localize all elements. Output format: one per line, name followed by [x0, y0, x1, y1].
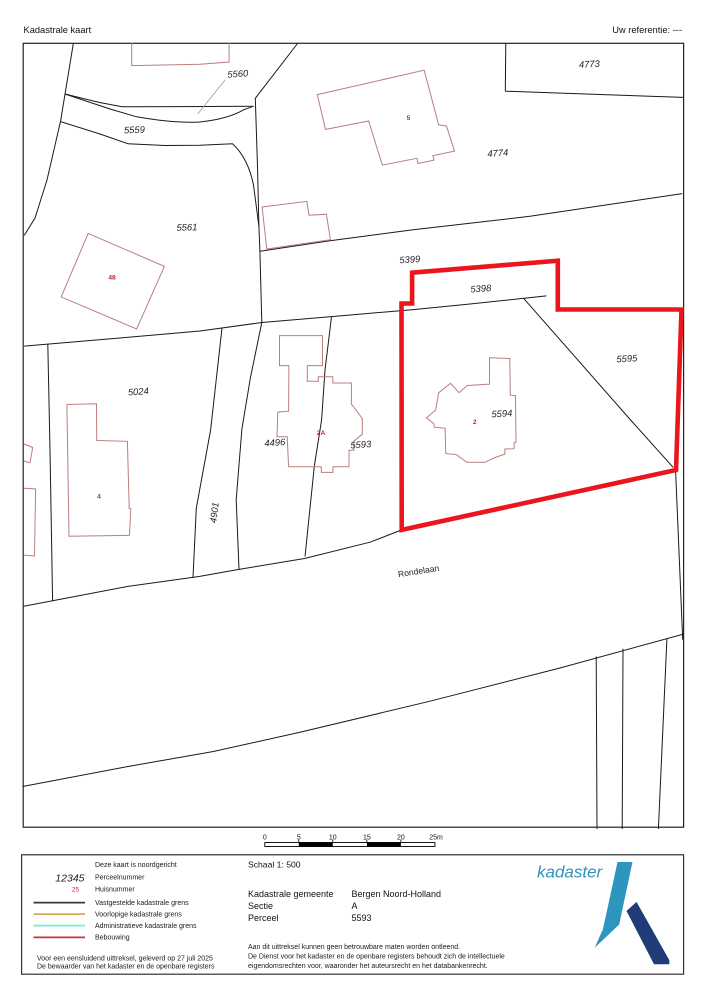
svg-text:Huisnummer: Huisnummer	[95, 886, 135, 893]
svg-text:25m: 25m	[429, 834, 443, 841]
svg-text:De bewaarder van het kadaster: De bewaarder van het kadaster en de open…	[37, 964, 215, 971]
svg-text:Vastgestelde kadastrale grens: Vastgestelde kadastrale grens	[95, 900, 189, 907]
svg-text:Uw referentie: ---: Uw referentie: ---	[612, 25, 682, 35]
svg-text:5593: 5593	[350, 438, 372, 450]
svg-text:Voorlopige kadastrale grens: Voorlopige kadastrale grens	[95, 911, 182, 918]
svg-text:Bergen Noord-Holland: Bergen Noord-Holland	[352, 889, 442, 899]
svg-text:5593: 5593	[352, 913, 372, 923]
svg-text:Deze kaart is noordgericht: Deze kaart is noordgericht	[95, 862, 177, 869]
svg-text:Kadastrale kaart: Kadastrale kaart	[24, 25, 92, 35]
svg-text:4: 4	[97, 494, 101, 501]
svg-text:Perceelnummer: Perceelnummer	[95, 874, 145, 881]
svg-text:De Dienst voor het kadaster en: De Dienst voor het kadaster en de openba…	[248, 954, 505, 961]
svg-text:Bebouwing: Bebouwing	[95, 935, 130, 942]
svg-text:5559: 5559	[124, 124, 146, 136]
svg-text:Schaal 1: 500: Schaal 1: 500	[248, 859, 301, 869]
svg-text:5398: 5398	[470, 282, 492, 294]
svg-text:Voor een eensluidend uittrekse: Voor een eensluidend uittreksel, gelever…	[37, 955, 213, 962]
svg-text:5595: 5595	[616, 352, 638, 364]
svg-text:4496: 4496	[264, 436, 286, 448]
svg-text:4773: 4773	[579, 58, 601, 70]
svg-text:25: 25	[72, 886, 80, 893]
svg-text:5399: 5399	[399, 253, 421, 265]
svg-text:Sectie: Sectie	[248, 901, 273, 911]
svg-text:5024: 5024	[127, 385, 149, 397]
svg-text:5: 5	[407, 115, 411, 122]
svg-text:Kadastrale gemeente: Kadastrale gemeente	[248, 889, 334, 899]
svg-text:5: 5	[297, 834, 301, 841]
svg-text:Perceel: Perceel	[248, 913, 279, 923]
svg-text:15: 15	[363, 834, 371, 841]
svg-text:Aan dit uittreksel kunnen geen: Aan dit uittreksel kunnen geen betrouwba…	[248, 944, 460, 951]
svg-text:5594: 5594	[491, 407, 512, 419]
svg-text:2A: 2A	[317, 430, 326, 437]
svg-text:12345: 12345	[55, 873, 84, 885]
svg-text:20: 20	[397, 834, 405, 841]
svg-text:eigendomsrechten voor, waarond: eigendomsrechten voor, waaronder het aut…	[248, 963, 488, 970]
svg-text:Administratieve kadastrale gre: Administratieve kadastrale grens	[95, 923, 197, 930]
svg-text:A: A	[352, 901, 358, 911]
svg-text:5561: 5561	[176, 221, 197, 233]
svg-text:kadaster: kadaster	[537, 863, 604, 882]
svg-text:2: 2	[473, 419, 477, 426]
svg-text:4774: 4774	[487, 147, 509, 159]
svg-text:5560: 5560	[227, 67, 249, 79]
svg-text:10: 10	[329, 834, 337, 841]
svg-text:0: 0	[263, 834, 267, 841]
svg-text:48: 48	[108, 275, 116, 282]
